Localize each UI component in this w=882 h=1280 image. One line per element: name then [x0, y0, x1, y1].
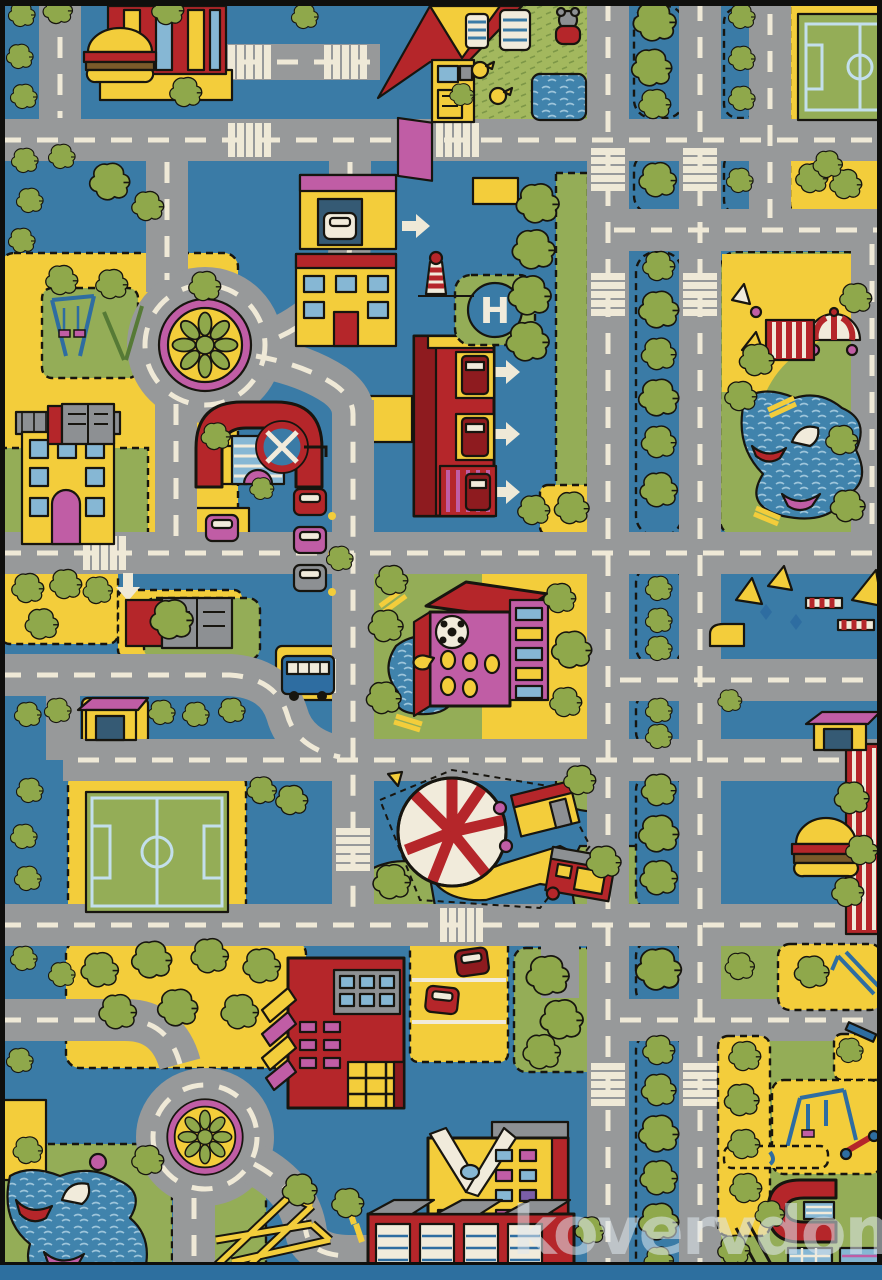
car	[206, 515, 238, 541]
garage-doors	[48, 404, 114, 444]
crosswalk	[683, 148, 717, 191]
fire-trucks	[462, 356, 490, 510]
crosswalk	[228, 123, 271, 157]
teddy-bear-toy	[556, 8, 580, 44]
crosswalk	[591, 1063, 625, 1106]
crosswalk	[436, 123, 479, 157]
watermark: kovervdom.ru	[512, 1192, 882, 1270]
kite-field	[716, 558, 882, 670]
watermark-main: kovervdom	[512, 1192, 882, 1270]
fire-station	[414, 336, 496, 516]
crosswalk	[228, 45, 271, 79]
hamburger-icon	[84, 28, 156, 82]
parked-car	[324, 213, 356, 239]
apartment-houses	[296, 175, 396, 346]
roundabout-flowerbed	[159, 299, 251, 391]
house-wall	[398, 118, 432, 181]
car	[294, 565, 326, 591]
crosswalk	[683, 273, 717, 316]
soccer-field-top	[798, 14, 882, 120]
crosswalk	[440, 908, 483, 942]
crosswalk	[683, 1063, 717, 1106]
garden-pond	[532, 74, 586, 120]
soccer-ball-icon	[436, 616, 468, 648]
car	[294, 527, 326, 553]
tree-lane	[556, 173, 588, 535]
roundabout-flowerbed	[167, 1099, 242, 1174]
yard-pad	[473, 178, 518, 204]
play-rug-product-photo: H	[0, 0, 882, 1280]
crosswalk	[591, 148, 625, 191]
car	[294, 489, 326, 515]
fire-station-yard	[370, 396, 412, 442]
helipad-letter: H	[480, 291, 510, 332]
rug-illustration: H	[0, 0, 882, 1280]
bus-stop	[282, 656, 334, 701]
car	[425, 985, 460, 1014]
crosswalk	[591, 273, 625, 316]
car	[454, 947, 489, 977]
window	[438, 66, 458, 82]
school-door	[52, 490, 80, 544]
oval-window	[461, 1165, 479, 1179]
crosswalk	[324, 45, 367, 79]
soccer-field-bottom	[86, 792, 228, 912]
door	[334, 312, 358, 346]
park-kiosk	[766, 320, 814, 360]
crosswalk	[336, 828, 370, 871]
